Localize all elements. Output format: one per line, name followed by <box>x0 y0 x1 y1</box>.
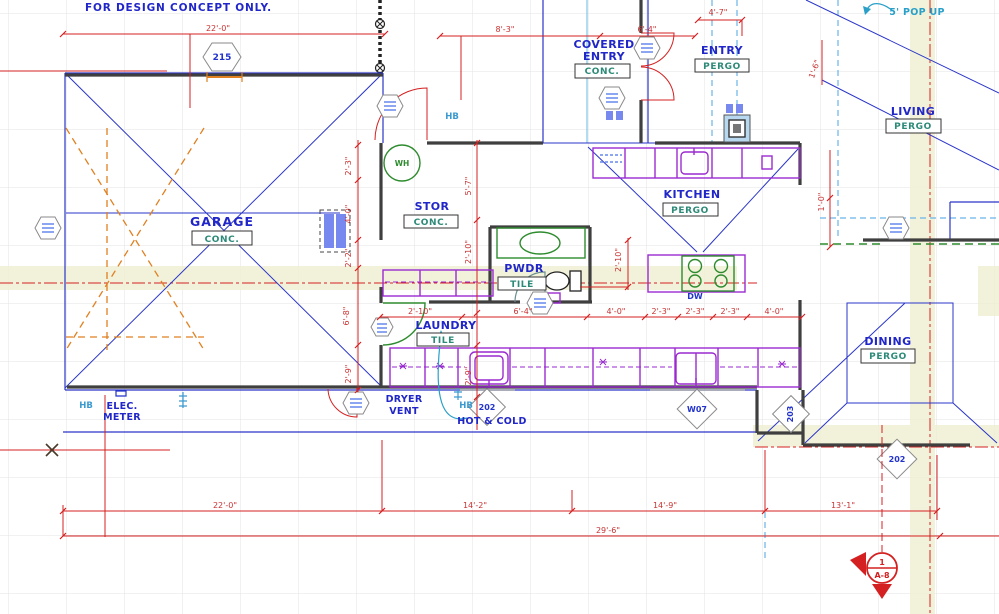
covered-entry-finish: CONC. <box>585 67 620 77</box>
dim-mid-2: 4'-0" <box>607 307 626 316</box>
dim-bottom-2: 14'-9" <box>653 501 677 510</box>
pwdr-finish: TILE <box>510 280 534 290</box>
dim-mid-0: 2'-10" <box>408 307 432 316</box>
dim-mid-1: 6'-4" <box>514 307 533 316</box>
window-w07-tag: W07 <box>687 405 707 414</box>
kitchen-label: KITCHEN <box>664 188 721 201</box>
entry-column <box>724 115 750 142</box>
hose-bib-label-3: HB <box>459 401 473 411</box>
dim-bottom-3: 13'-1" <box>831 501 855 510</box>
hot-cold-note: HOT & COLD <box>457 416 526 427</box>
garage-finish: CONC. <box>205 235 240 245</box>
floor-plan-drawing: 1 A-8 FOR DESIGN CONCEPT ONLY. GARAGE CO… <box>0 0 999 614</box>
dim-left-1: 4'-0" <box>344 205 353 224</box>
dim-island: 2'-10" <box>614 248 623 272</box>
door-202b-tag: 202 <box>889 455 906 464</box>
floor-plan-sheet: 1 A-8 FOR DESIGN CONCEPT ONLY. GARAGE CO… <box>0 0 999 614</box>
elec-meter-line2: METER <box>103 412 141 423</box>
dim-left-4: 2'-9" <box>344 365 353 384</box>
dim-center-2: 2'-9" <box>464 367 473 386</box>
dim-4-7: 4'-7" <box>709 8 728 17</box>
dim-overall: 29'-6" <box>596 526 620 535</box>
toilet-tank <box>570 271 581 291</box>
section-number: 1 <box>879 558 885 567</box>
dim-center-0: 5'-7" <box>464 177 473 196</box>
elec-meter-line1: ELEC. <box>106 401 137 412</box>
dishwasher-label: DW <box>687 292 703 301</box>
kitchen-finish: PERGO <box>671 206 709 216</box>
pop-up-note: 5' POP UP <box>889 7 945 18</box>
stor-finish: CONC. <box>414 218 449 228</box>
dim-right-1: 1'-0" <box>817 193 826 212</box>
entry-finish: PERGO <box>703 62 741 72</box>
water-heater-label: WH <box>395 159 410 168</box>
living-finish: PERGO <box>894 122 932 132</box>
laundry-label: LAUNDRY <box>415 319 477 332</box>
laundry-finish: TILE <box>431 336 455 346</box>
dim-center-1: 2'-10" <box>464 240 473 264</box>
dining-finish: PERGO <box>869 352 907 362</box>
covered-entry-label-2: ENTRY <box>583 50 626 63</box>
dim-left-0: 2'-3" <box>344 157 353 176</box>
dim-top-garage: 22'-0" <box>206 24 230 33</box>
toilet-bowl <box>545 272 569 290</box>
dim-left-3: 6'-8" <box>342 307 351 326</box>
dim-mid-5: 2'-3" <box>721 307 740 316</box>
dim-bottom-1: 14'-2" <box>463 501 487 510</box>
dim-8-3: 8'-3" <box>496 25 515 34</box>
dim-bottom-0: 22'-0" <box>213 501 237 510</box>
section-sheet: A-8 <box>874 571 890 580</box>
grid-background <box>0 0 999 614</box>
garage-label: GARAGE <box>190 214 254 229</box>
dim-mid-3: 2'-3" <box>652 307 671 316</box>
hose-bib-label-2: HB <box>445 112 459 122</box>
hose-bib-label-1: HB <box>79 401 93 411</box>
dim-6-4: 6'-4" <box>638 25 657 34</box>
dim-mid-4: 2'-3" <box>686 307 705 316</box>
living-label: LIVING <box>891 105 935 118</box>
dim-left-2: 2'-2" <box>344 249 353 268</box>
door-203-tag: 203 <box>786 406 795 423</box>
dryer-vent-line2: VENT <box>389 406 419 417</box>
equipment-left <box>324 214 334 248</box>
garage-door-tag-text: 215 <box>213 53 232 63</box>
dim-mid-6: 4'-0" <box>765 307 784 316</box>
pwdr-label: PWDR <box>504 262 544 275</box>
entry-label: ENTRY <box>701 44 744 57</box>
disclaimer-text: FOR DESIGN CONCEPT ONLY. <box>85 2 272 14</box>
dining-label: DINING <box>864 335 911 348</box>
stor-label: STOR <box>415 200 450 213</box>
dryer-vent-line1: DRYER <box>386 394 423 405</box>
door-202-tag: 202 <box>479 403 496 412</box>
